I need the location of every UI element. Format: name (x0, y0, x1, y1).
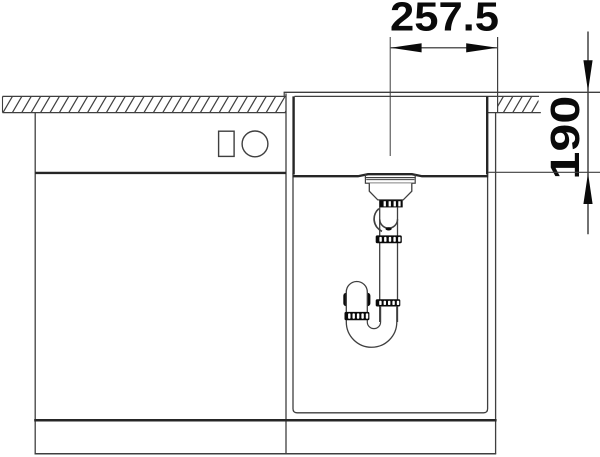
svg-text:257.5: 257.5 (390, 0, 499, 40)
svg-text:190: 190 (542, 96, 588, 180)
